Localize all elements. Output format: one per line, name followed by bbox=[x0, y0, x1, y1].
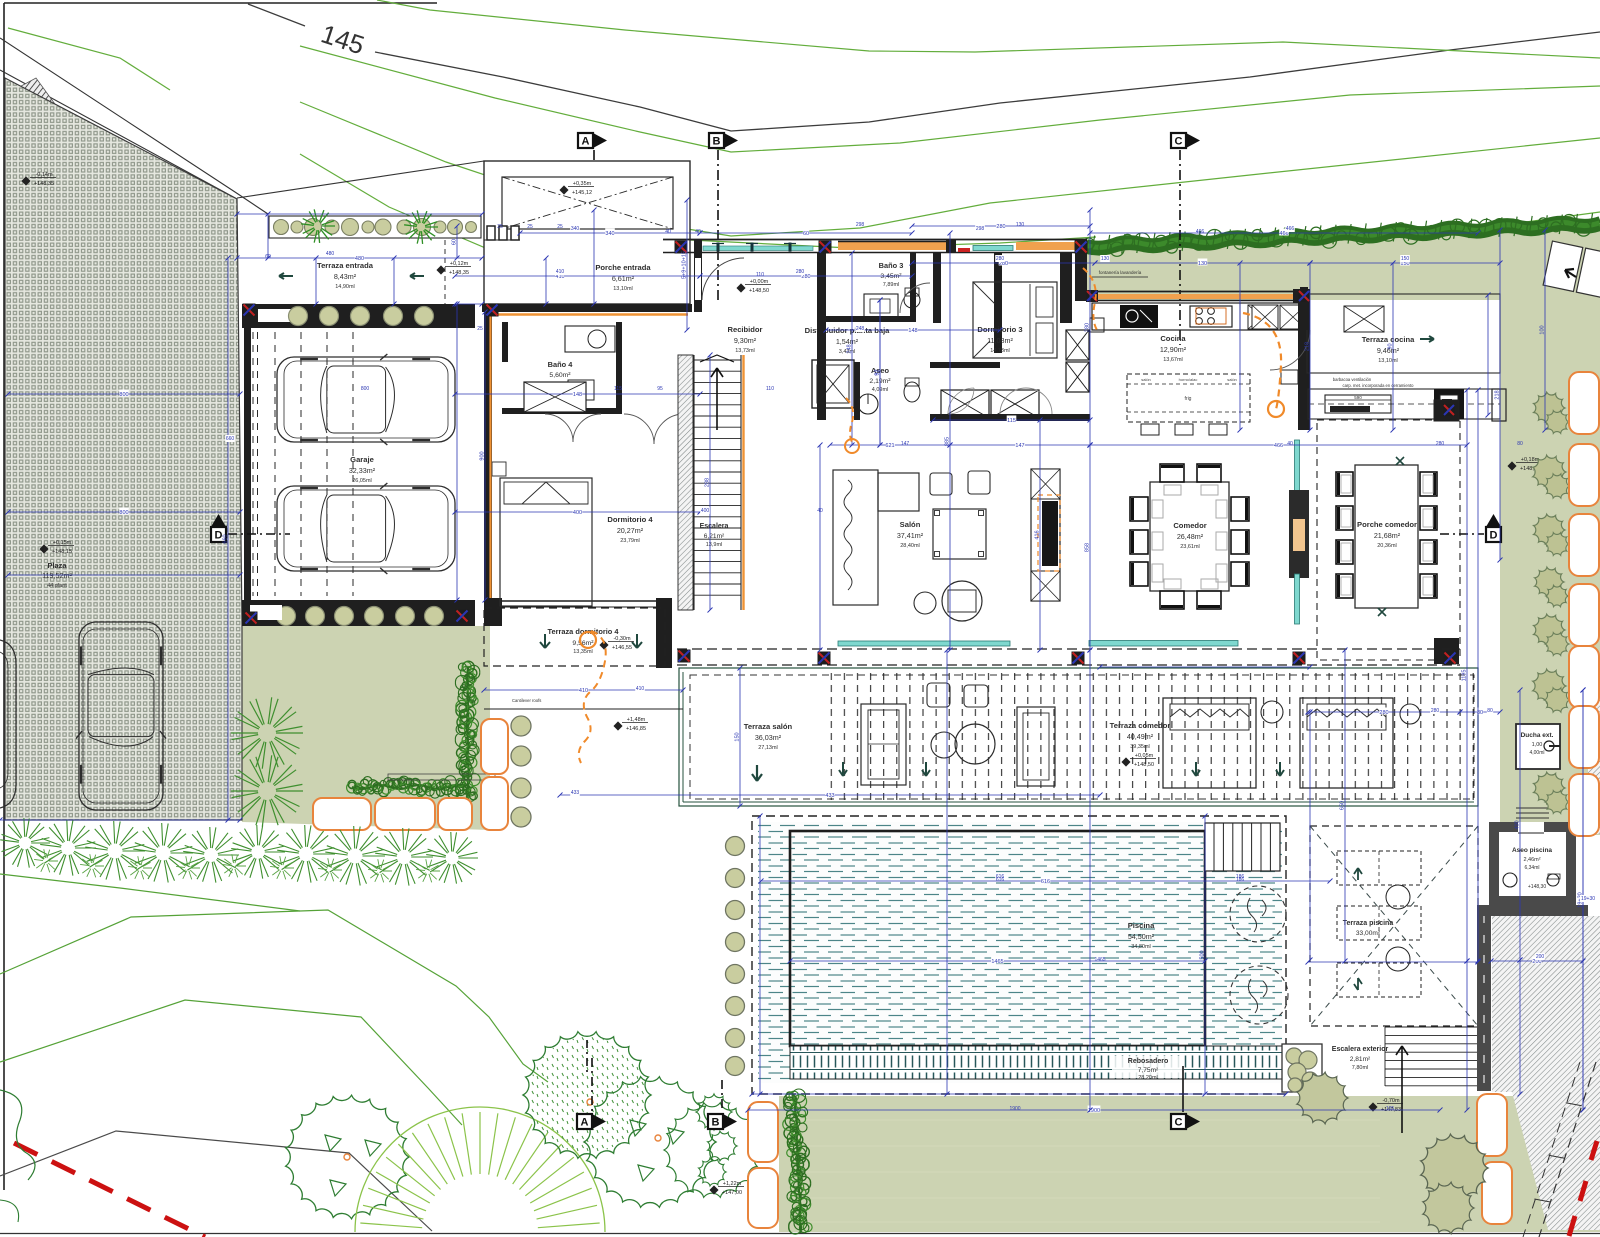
svg-text:40: 40 bbox=[1287, 441, 1293, 447]
svg-text:40: 40 bbox=[817, 508, 823, 514]
svg-text:salón: salón bbox=[1141, 377, 1151, 382]
svg-text:20,27m²: 20,27m² bbox=[617, 526, 644, 535]
svg-text:6,21m²: 6,21m² bbox=[704, 533, 725, 540]
svg-text:90: 90 bbox=[1388, 343, 1394, 349]
svg-text:60: 60 bbox=[452, 239, 458, 245]
svg-text:280: 280 bbox=[1379, 710, 1388, 716]
svg-text:C: C bbox=[1175, 136, 1183, 148]
svg-text:27,13ml: 27,13ml bbox=[758, 745, 778, 751]
svg-text:12,90m²: 12,90m² bbox=[1160, 345, 1187, 354]
svg-text:200: 200 bbox=[1536, 954, 1545, 960]
svg-text:frig: frig bbox=[1185, 396, 1192, 402]
svg-text:-0,30m: -0,30m bbox=[613, 636, 631, 642]
svg-text:1,00: 1,00 bbox=[1532, 742, 1543, 748]
svg-text:218: 218 bbox=[1305, 342, 1311, 351]
svg-text:Recibidor: Recibidor bbox=[727, 325, 762, 334]
svg-text:28,40ml: 28,40ml bbox=[900, 543, 920, 549]
svg-text:60: 60 bbox=[803, 231, 809, 237]
svg-text:2,46m²: 2,46m² bbox=[1523, 857, 1540, 863]
svg-text:248: 248 bbox=[856, 326, 865, 332]
svg-text:148: 148 bbox=[908, 328, 917, 334]
svg-text:Porche entrada: Porche entrada bbox=[595, 263, 651, 272]
svg-text:28,20ml: 28,20ml bbox=[1138, 1075, 1158, 1081]
svg-text:13,10ml: 13,10ml bbox=[1378, 358, 1398, 364]
svg-text:1900: 1900 bbox=[1009, 1106, 1020, 1112]
svg-text:400: 400 bbox=[1515, 820, 1521, 829]
svg-text:40: 40 bbox=[695, 229, 701, 235]
svg-text:40,49m²: 40,49m² bbox=[1127, 732, 1154, 741]
svg-text:92: 92 bbox=[875, 369, 881, 375]
svg-text:horno/alac: horno/alac bbox=[1179, 377, 1198, 382]
svg-text:147: 147 bbox=[1015, 443, 1024, 449]
svg-text:carp. met. incorporada en cerr: carp. met. incorporada en cerramiento bbox=[1343, 383, 1415, 388]
svg-text:26,48m²: 26,48m² bbox=[1177, 532, 1204, 541]
svg-text:54,50m²: 54,50m² bbox=[1128, 932, 1155, 941]
svg-text:130: 130 bbox=[1016, 222, 1025, 228]
svg-text:500: 500 bbox=[1200, 950, 1206, 959]
svg-text:+0,05m: +0,05m bbox=[1135, 753, 1154, 759]
svg-text:Baño 4: Baño 4 bbox=[548, 360, 574, 369]
svg-text:6,61m²: 6,61m² bbox=[612, 274, 635, 283]
svg-text:400: 400 bbox=[701, 508, 710, 514]
svg-text:Piscina: Piscina bbox=[1128, 921, 1155, 930]
svg-text:Cantilever roofs: Cantilever roofs bbox=[512, 698, 541, 703]
svg-text:C: C bbox=[1175, 1117, 1183, 1129]
svg-text:+146,55: +146,55 bbox=[612, 645, 632, 651]
svg-text:13,67ml: 13,67ml bbox=[1163, 357, 1183, 363]
svg-text:800: 800 bbox=[119, 392, 128, 398]
svg-text:34,80ml: 34,80ml bbox=[1131, 944, 1151, 950]
svg-text:3,45m²: 3,45m² bbox=[880, 273, 902, 280]
svg-text:fontanería lavandería: fontanería lavandería bbox=[1099, 270, 1142, 275]
svg-text:13,73ml: 13,73ml bbox=[735, 348, 755, 354]
svg-text:5,60m²: 5,60m² bbox=[549, 372, 571, 379]
svg-text:barbacoa ventilación: barbacoa ventilación bbox=[1333, 377, 1372, 382]
svg-text:Terraza comedor: Terraza comedor bbox=[1110, 721, 1171, 730]
svg-text:621: 621 bbox=[885, 443, 894, 449]
svg-text:Terraza salón: Terraza salón bbox=[744, 722, 793, 731]
svg-text:14,73ml: 14,73ml bbox=[990, 348, 1010, 354]
svg-text:+148,15: +148,15 bbox=[52, 549, 72, 555]
svg-text:110: 110 bbox=[766, 386, 774, 392]
svg-text:885: 885 bbox=[945, 437, 951, 446]
svg-text:14,90ml: 14,90ml bbox=[335, 284, 355, 290]
svg-text:115: 115 bbox=[614, 386, 622, 392]
svg-text:115: 115 bbox=[1007, 418, 1016, 424]
svg-text:37,41m²: 37,41m² bbox=[897, 531, 924, 540]
svg-text:186: 186 bbox=[1236, 877, 1245, 883]
svg-text:280: 280 bbox=[996, 224, 1005, 230]
svg-text:B: B bbox=[713, 136, 721, 148]
svg-text:105: 105 bbox=[1386, 1106, 1395, 1112]
svg-text:13,35ml: 13,35ml bbox=[573, 649, 593, 655]
svg-text:Garaje: Garaje bbox=[350, 455, 374, 464]
svg-text:298: 298 bbox=[976, 226, 985, 232]
svg-text:Salón: Salón bbox=[900, 520, 921, 529]
svg-text:+148,35: +148,35 bbox=[34, 181, 54, 187]
svg-text:-0,70m: -0,70m bbox=[1382, 1098, 1400, 1104]
svg-text:280: 280 bbox=[1436, 441, 1445, 447]
svg-text:8,43m²: 8,43m² bbox=[334, 272, 357, 281]
svg-text:+1,22m: +1,22m bbox=[723, 1181, 742, 1187]
svg-text:39,35ml: 39,35ml bbox=[1130, 744, 1150, 750]
svg-text:400: 400 bbox=[573, 510, 582, 516]
svg-text:25: 25 bbox=[477, 326, 483, 332]
svg-text:+148,35: +148,35 bbox=[449, 270, 469, 276]
svg-text:280: 280 bbox=[796, 269, 805, 275]
svg-text:13,10ml: 13,10ml bbox=[613, 286, 633, 292]
svg-text:1195: 1195 bbox=[1462, 670, 1468, 682]
svg-text:25: 25 bbox=[527, 224, 533, 230]
svg-text:44 plant: 44 plant bbox=[47, 583, 67, 589]
svg-text:Cocina: Cocina bbox=[1160, 334, 1186, 343]
svg-text:B: B bbox=[712, 1117, 720, 1129]
svg-text:13,9ml: 13,9ml bbox=[706, 542, 723, 548]
svg-text:248: 248 bbox=[847, 344, 853, 353]
svg-text:800: 800 bbox=[361, 386, 370, 392]
svg-text:7,89ml: 7,89ml bbox=[883, 282, 900, 288]
svg-text:150: 150 bbox=[1401, 256, 1410, 262]
svg-text:480: 480 bbox=[326, 251, 335, 257]
svg-text:Aseo piscina: Aseo piscina bbox=[1512, 847, 1552, 854]
svg-text:A: A bbox=[582, 136, 590, 148]
svg-text:36,03m²: 36,03m² bbox=[755, 733, 782, 742]
svg-text:+146,85: +146,85 bbox=[626, 726, 646, 732]
svg-text:410: 410 bbox=[579, 688, 588, 694]
svg-text:33,00m²: 33,00m² bbox=[1356, 930, 1381, 937]
svg-text:23,61ml: 23,61ml bbox=[1180, 544, 1200, 550]
svg-text:Dormitorio 4: Dormitorio 4 bbox=[607, 515, 653, 524]
svg-text:A: A bbox=[581, 1117, 589, 1129]
svg-text:60: 60 bbox=[265, 254, 271, 260]
svg-text:1465: 1465 bbox=[991, 959, 1003, 965]
svg-text:-0,14m: -0,14m bbox=[35, 172, 53, 178]
svg-text:+0,12m: +0,12m bbox=[450, 261, 469, 267]
svg-text:466: 466 bbox=[1274, 443, 1283, 449]
svg-text:Rebosadero: Rebosadero bbox=[1128, 1058, 1168, 1065]
svg-text:23,79ml: 23,79ml bbox=[620, 538, 640, 544]
svg-text:616: 616 bbox=[996, 877, 1005, 883]
svg-text:218: 218 bbox=[1495, 390, 1501, 399]
svg-text:410: 410 bbox=[636, 686, 645, 692]
svg-text:80: 80 bbox=[1517, 441, 1523, 447]
svg-text:900: 900 bbox=[480, 451, 486, 460]
svg-text:Comedor: Comedor bbox=[1173, 521, 1206, 530]
svg-text:340: 340 bbox=[605, 231, 614, 237]
svg-text:salón: salón bbox=[1227, 377, 1237, 382]
svg-text:110: 110 bbox=[756, 272, 764, 278]
svg-text:148: 148 bbox=[573, 392, 582, 398]
svg-text:+145,12: +145,12 bbox=[572, 190, 592, 196]
svg-text:9,30m²: 9,30m² bbox=[734, 336, 757, 345]
svg-text:Terraza cocina: Terraza cocina bbox=[1362, 335, 1415, 344]
svg-text:480: 480 bbox=[355, 256, 364, 262]
svg-text:40: 40 bbox=[665, 229, 671, 235]
svg-text:4,00ml: 4,00ml bbox=[1529, 750, 1544, 756]
svg-text:147: 147 bbox=[901, 441, 910, 447]
svg-text:280: 280 bbox=[1085, 323, 1091, 332]
svg-text:650: 650 bbox=[1340, 801, 1346, 810]
svg-text:416: 416 bbox=[1035, 530, 1041, 539]
svg-text:119,52m²: 119,52m² bbox=[42, 571, 72, 580]
svg-text:Porche comedor: Porche comedor bbox=[1357, 520, 1417, 529]
svg-text:80: 80 bbox=[1487, 708, 1493, 714]
svg-text:25: 25 bbox=[497, 224, 503, 230]
svg-text:280: 280 bbox=[1431, 708, 1440, 714]
svg-text:340: 340 bbox=[571, 226, 580, 232]
svg-text:660: 660 bbox=[226, 436, 235, 442]
svg-text:616: 616 bbox=[1041, 879, 1050, 885]
svg-text:433: 433 bbox=[571, 790, 580, 796]
svg-text:Escalera exterior: Escalera exterior bbox=[1332, 1046, 1389, 1053]
svg-text:6,34ml: 6,34ml bbox=[1524, 865, 1539, 871]
svg-text:410: 410 bbox=[556, 269, 565, 275]
svg-text:95: 95 bbox=[657, 386, 663, 392]
svg-text:+0,00m: +0,00m bbox=[750, 279, 769, 285]
svg-text:21,68m²: 21,68m² bbox=[1374, 531, 1401, 540]
svg-text:Terraza entrada: Terraza entrada bbox=[317, 261, 374, 270]
svg-text:19+30: 19+30 bbox=[1581, 896, 1595, 902]
svg-text:466: 466 bbox=[1196, 229, 1205, 235]
svg-text:32,33m²: 32,33m² bbox=[349, 466, 376, 475]
svg-text:298: 298 bbox=[856, 222, 865, 228]
svg-text:11,08m²: 11,08m² bbox=[987, 336, 1013, 345]
svg-text:+0,15m: +0,15m bbox=[53, 540, 72, 546]
svg-text:660: 660 bbox=[223, 534, 229, 543]
svg-text:+0,35m: +0,35m bbox=[573, 181, 592, 187]
svg-text:Ducha ext.: Ducha ext. bbox=[1521, 732, 1554, 739]
svg-text:130: 130 bbox=[1101, 256, 1110, 262]
svg-text:858: 858 bbox=[1085, 543, 1091, 552]
svg-text:+148,30: +148,30 bbox=[1528, 884, 1546, 890]
svg-text:+0,18m: +0,18m bbox=[1521, 457, 1540, 463]
svg-text:130: 130 bbox=[1198, 261, 1207, 267]
svg-text:Escalera: Escalera bbox=[700, 523, 729, 530]
svg-text:590: 590 bbox=[1354, 395, 1362, 400]
svg-text:+147,00: +147,00 bbox=[722, 1190, 742, 1196]
svg-text:2,81m²: 2,81m² bbox=[1350, 1056, 1371, 1063]
svg-text:Plaza: Plaza bbox=[48, 561, 68, 570]
svg-text:D: D bbox=[1490, 530, 1498, 542]
svg-text:5+9+10+15: 5+9+10+15 bbox=[682, 251, 688, 279]
svg-text:Terraza piscina: Terraza piscina bbox=[1343, 920, 1394, 927]
svg-text:288: 288 bbox=[705, 478, 711, 487]
svg-text:7,80ml: 7,80ml bbox=[1352, 1065, 1369, 1071]
svg-text:1465: 1465 bbox=[1094, 957, 1105, 963]
svg-text:100: 100 bbox=[1540, 325, 1546, 334]
svg-text:25: 25 bbox=[557, 224, 563, 230]
svg-text:Baño 3: Baño 3 bbox=[879, 261, 904, 270]
svg-text:800: 800 bbox=[119, 510, 128, 516]
svg-text:D: D bbox=[215, 530, 223, 542]
svg-text:280: 280 bbox=[996, 256, 1005, 262]
svg-text:7,75m²: 7,75m² bbox=[1138, 1067, 1159, 1074]
svg-text:150: 150 bbox=[735, 732, 741, 741]
svg-text:466: 466 bbox=[1286, 226, 1295, 232]
svg-text:+1,48m: +1,48m bbox=[627, 717, 646, 723]
svg-text:20,36ml: 20,36ml bbox=[1377, 543, 1397, 549]
svg-text:26,05ml: 26,05ml bbox=[352, 478, 372, 484]
svg-text:433: 433 bbox=[825, 793, 834, 799]
svg-text:+148,50: +148,50 bbox=[1134, 762, 1154, 768]
svg-text:+148,50: +148,50 bbox=[749, 288, 769, 294]
